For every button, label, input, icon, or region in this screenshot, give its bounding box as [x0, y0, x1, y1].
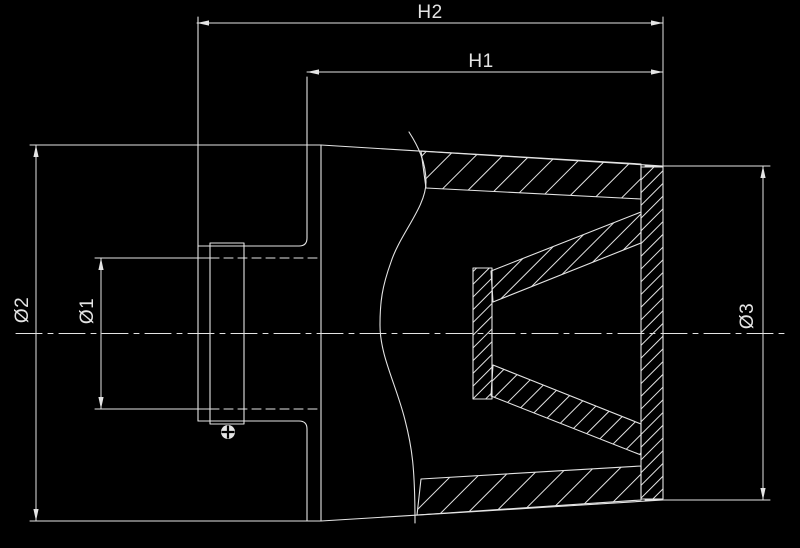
inner-cone-apex-tube — [473, 268, 492, 399]
drawing-background — [0, 0, 800, 548]
clamp-screw-icon — [221, 425, 235, 439]
h2-label: H2 — [417, 2, 442, 23]
d2-label: Ø2 — [12, 297, 33, 323]
h1-label: H1 — [468, 51, 493, 72]
d1-label: Ø1 — [77, 298, 98, 324]
drawing-canvas: H2 H1 Ø2 Ø1 Ø3 — [0, 0, 800, 548]
air-filter-technical-drawing: H2 H1 Ø2 Ø1 Ø3 — [0, 0, 800, 548]
end-cap-section — [641, 167, 663, 499]
d3-label: Ø3 — [737, 303, 758, 329]
